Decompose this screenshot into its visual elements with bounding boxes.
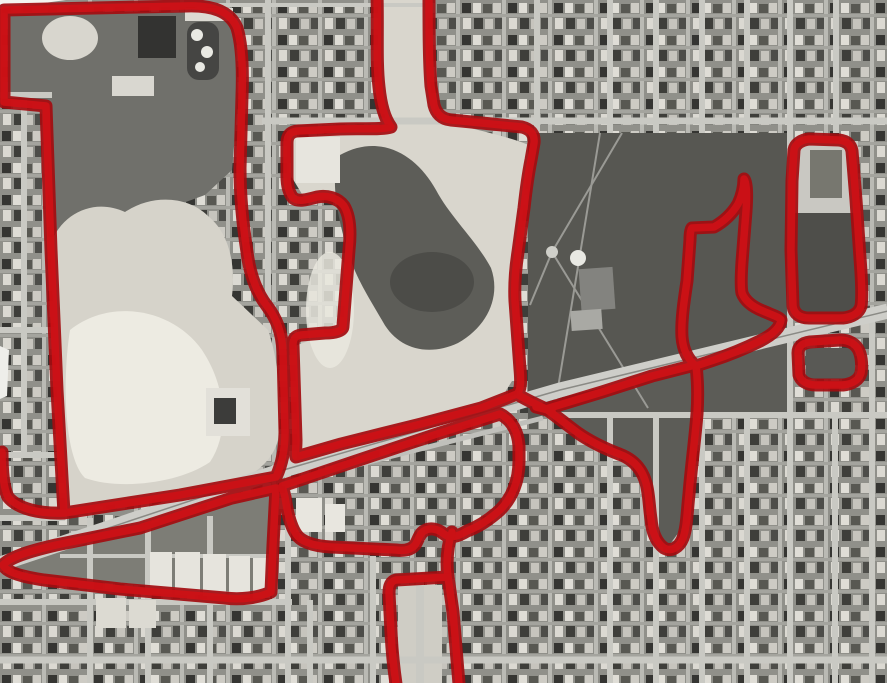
white-patch-topleft xyxy=(42,16,98,60)
aerial-photo-canvas xyxy=(0,0,887,683)
park-white-circle xyxy=(570,250,586,266)
small-ring-interior xyxy=(806,348,855,379)
park-building-small xyxy=(570,309,602,331)
gully-core xyxy=(390,252,474,312)
white-building-left xyxy=(112,76,154,96)
quarry-shed xyxy=(214,398,236,424)
oil-tank-icon xyxy=(191,29,203,41)
park-junction-node xyxy=(546,246,558,258)
oil-tank-icon xyxy=(201,46,213,58)
white-building-lower-center-a xyxy=(296,498,322,532)
east-parcel-dark-bottom xyxy=(794,213,860,316)
aerial-photo-svg xyxy=(0,0,887,683)
white-building-lower-center-b xyxy=(325,504,345,532)
east-parcel-dark-patch xyxy=(810,150,842,198)
dark-shed-topleft xyxy=(138,16,176,58)
park-building-large xyxy=(579,267,616,311)
white-warehouse-cluster-a xyxy=(296,137,340,183)
oil-tank-icon xyxy=(195,62,205,72)
